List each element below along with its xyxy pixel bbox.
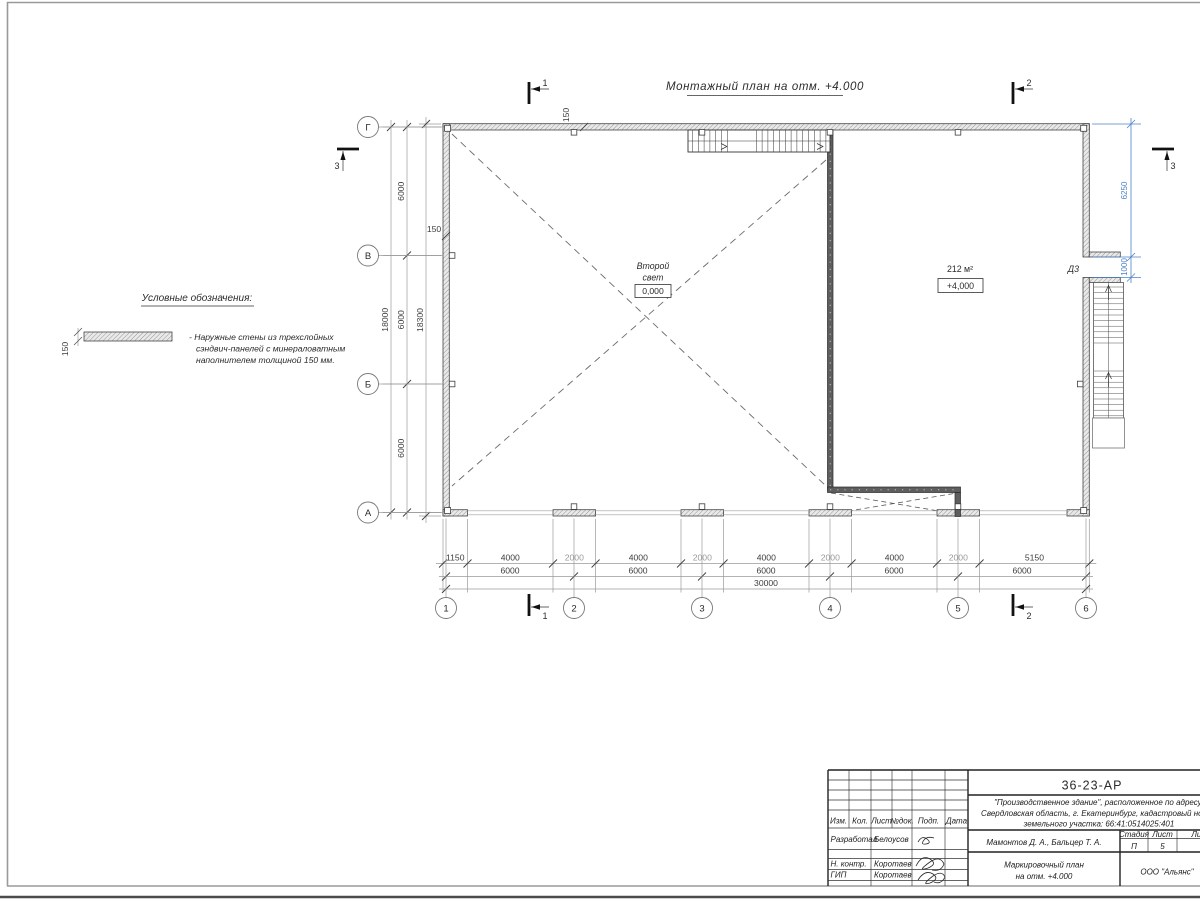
row-axis-label: А [365, 508, 372, 519]
sheet-frame [0, 2, 1200, 897]
column-axis-label: 5 [955, 603, 960, 614]
section-mark-1-bottom: 1 [529, 594, 549, 621]
section-mark-3-right: 3 [1152, 149, 1176, 171]
tb-doc-name-line2: на отм. +4.000 [1016, 872, 1073, 881]
tb-list-header: Лист [1151, 830, 1173, 839]
dim-label: 6000 [396, 181, 406, 200]
dim-label: 6000 [628, 565, 647, 575]
door-label: Д3 [1067, 264, 1079, 274]
interior-stair [688, 130, 830, 152]
svg-text:2: 2 [1026, 78, 1031, 88]
section-marks: 1 2 1 2 3 3 [334, 78, 1175, 621]
column-axis-label: 1 [443, 603, 448, 614]
tb-sheet-number: 5 [1160, 842, 1165, 851]
dim-label: 4000 [501, 552, 520, 562]
column-axis-label: 4 [827, 603, 832, 614]
tb-doc-name-line1: Маркировочный план [1004, 861, 1084, 870]
dim-label: 18300 [415, 308, 425, 332]
wall-thickness-left: 150 [427, 224, 442, 234]
dim-label: 18000 [380, 308, 390, 332]
dim-label: 4000 [885, 552, 904, 562]
dim-label: 4000 [629, 552, 648, 562]
room-left-name1: Второй [637, 261, 670, 271]
tb-col-izm: Изм. [830, 817, 847, 826]
svg-text:3: 3 [334, 161, 339, 171]
dim-label: 2000 [949, 552, 968, 562]
dim-label: 2000 [693, 552, 712, 562]
tb-authors: Мамонтов Д. А., Бальцер Т. А. [986, 838, 1101, 847]
column-axis-label: 2 [571, 603, 576, 614]
tb-company: ООО "Альянс" [1140, 868, 1194, 877]
wall-right-upper [1083, 124, 1089, 257]
dim-label: 2000 [821, 552, 840, 562]
tb-project-line2: Свердловская область, г. Екатеринбург, к… [981, 809, 1200, 818]
dim-1000: 1000 [1120, 258, 1129, 276]
extension-lines [383, 124, 1089, 593]
tb-stage-value: П [1131, 842, 1137, 851]
dim-label: 6000 [1012, 565, 1031, 575]
legend-wall-sample [84, 332, 172, 341]
legend-note-line3: наполнителем толщиной 150 мм. [196, 355, 335, 365]
tb-code: 36-23-АР [1062, 779, 1123, 793]
dim-label: 30000 [754, 578, 778, 588]
wall-left [443, 124, 449, 516]
tb-role-gip: ГИП [831, 871, 847, 880]
svg-text:1: 1 [542, 611, 547, 621]
tb-name-gip: Коротаев [874, 871, 912, 880]
column-markers [445, 125, 1087, 513]
svg-text:1: 1 [542, 78, 547, 88]
dim-label: 6000 [500, 565, 519, 575]
tb-project-line3: земельного участка: 66:41:0514025:401 [1023, 820, 1175, 829]
room-left-name2: свет [643, 273, 664, 283]
column-axis-label: 6 [1083, 603, 1088, 614]
wall-bottom-panel [553, 510, 596, 516]
tb-stage-header: Стадия [1119, 830, 1150, 839]
interior-wall-vertical [828, 130, 834, 490]
dim-label: 4000 [757, 552, 776, 562]
plan-title: Монтажный план на отм. +4.000 [666, 81, 864, 96]
wall-right-lower [1083, 278, 1089, 517]
tb-col-podp: Подп. [918, 817, 939, 826]
legend-note-line2: сэндвич-панелей с минераловатным [196, 344, 345, 354]
dim-label: 6000 [396, 438, 406, 457]
tb-role-developer: Разработал [831, 835, 878, 844]
legend-note-line1: - Наружные стены из трехслойных [189, 332, 334, 342]
svg-text:3: 3 [1171, 161, 1176, 171]
section-mark-2-bottom: 2 [1013, 594, 1033, 621]
drawing-sheet: Монтажный план на отм. +4.000 Условные о… [0, 0, 1200, 900]
tb-project-line1: "Производственное здание", расположенное… [994, 798, 1200, 807]
column-axis-label: 3 [699, 603, 704, 614]
wall-top [443, 124, 1089, 130]
section-mark-3-left: 3 [334, 149, 359, 171]
room-right-elevation: +4,000 [947, 281, 974, 291]
plan-canvas: Монтажный план на отм. +4.000 Условные о… [0, 0, 1200, 900]
legend-heading: Условные обозначения: [141, 292, 253, 304]
legend-thickness-label: 150 [60, 342, 70, 357]
section-mark-1-top: 1 [529, 78, 549, 104]
dim-label: 6000 [756, 565, 775, 575]
wall-bottom-panel [809, 510, 852, 516]
tb-col-ndok: №док. [890, 817, 914, 826]
dim-6250: 6250 [1120, 181, 1129, 199]
plan-title-text: Монтажный план на отм. +4.000 [666, 81, 864, 93]
interior-wall-horizontal [828, 487, 961, 493]
tb-col-kol: Кол. [852, 817, 868, 826]
exterior-stair [1089, 252, 1124, 448]
title-block: Изм. Кол. Лист №док. Подп. Дата Разработ… [828, 770, 1200, 886]
dim-label: 2000 [565, 552, 584, 562]
stair-landing [1093, 418, 1125, 448]
tb-col-data: Дата [945, 817, 968, 826]
row-axis-label: Б [365, 379, 371, 390]
axis-bubbles: ГВБА123456 [358, 117, 1097, 619]
section-mark-2-top: 2 [1013, 78, 1033, 104]
svg-text:2: 2 [1026, 611, 1031, 621]
dim-label: 5150 [1025, 552, 1044, 562]
room-right-area: 212 м² [947, 264, 973, 274]
building [443, 124, 1125, 517]
dim-label: 1150 [446, 552, 465, 562]
tb-listov-header: Листов [1190, 830, 1200, 839]
legend: Условные обозначения: 150 - Наружные сте… [60, 292, 345, 365]
room-left-elevation: 0,000 [642, 286, 664, 296]
blue-dimensions: 6250 1000 [1092, 118, 1141, 283]
row-axis-label: В [365, 251, 371, 262]
tb-name-ncontrol: Коротаев [874, 860, 912, 869]
dim-label: 6000 [884, 565, 903, 575]
tb-name-developer: Белоусов [874, 835, 909, 844]
dimension-rows: 1150400020004000200040002000400020005150… [380, 117, 1097, 593]
tb-role-ncontrol: Н. контр. [831, 860, 867, 869]
wall-bottom-panel [681, 510, 724, 516]
tb-col-list: Лист [870, 817, 892, 826]
wall-thickness-top: 150 [561, 108, 571, 123]
dim-label: 6000 [396, 310, 406, 329]
signatures [916, 837, 945, 883]
row-axis-label: Г [365, 122, 370, 133]
